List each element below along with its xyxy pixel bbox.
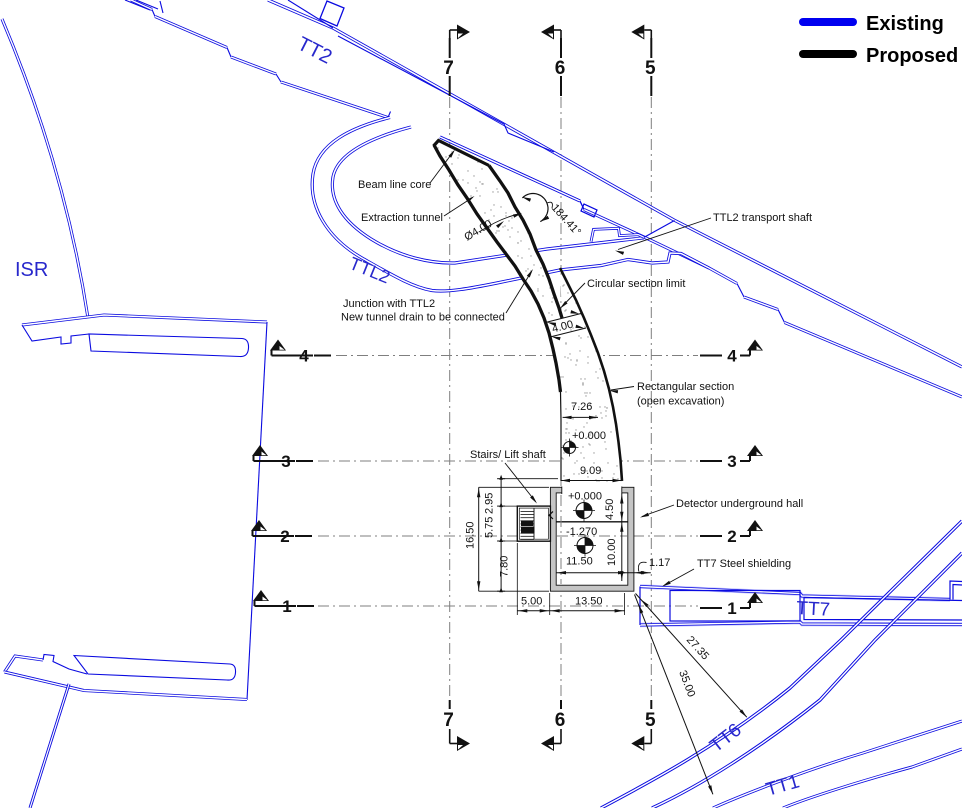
svg-text:+0.000: +0.000 (568, 491, 602, 503)
svg-text:10.00: 10.00 (606, 538, 618, 566)
svg-text:3: 3 (727, 452, 736, 471)
svg-text:2: 2 (727, 527, 736, 546)
svg-text:4: 4 (299, 347, 309, 366)
svg-text:4: 4 (727, 347, 737, 366)
svg-text:7: 7 (443, 58, 454, 79)
svg-text:4.50: 4.50 (604, 499, 616, 520)
svg-text:Detector underground hall: Detector underground hall (676, 498, 803, 510)
svg-text:Existing: Existing (866, 13, 944, 35)
svg-text:Stairs/ Lift shaft: Stairs/ Lift shaft (470, 449, 546, 461)
svg-text:5: 5 (645, 710, 656, 731)
svg-text:1: 1 (282, 597, 291, 616)
svg-text:5: 5 (645, 58, 656, 79)
svg-text:New tunnel drain to be connect: New tunnel drain to be connected (341, 312, 505, 324)
svg-text:16.50: 16.50 (465, 521, 477, 549)
svg-text:6: 6 (555, 710, 566, 731)
svg-text:2.95: 2.95 (484, 493, 496, 514)
svg-text:Extraction tunnel: Extraction tunnel (361, 212, 443, 224)
svg-text:13.50: 13.50 (575, 596, 603, 608)
svg-text:7.26: 7.26 (571, 401, 592, 413)
svg-text:(open excavation): (open excavation) (637, 396, 724, 408)
svg-text:11.50: 11.50 (566, 556, 593, 568)
svg-text:TTL2 transport shaft: TTL2 transport shaft (713, 212, 812, 224)
svg-text:5.00: 5.00 (521, 596, 542, 608)
svg-text:1: 1 (727, 599, 736, 618)
svg-text:Rectangular section: Rectangular section (637, 381, 734, 393)
svg-text:9.09: 9.09 (580, 465, 601, 477)
svg-text:5.75: 5.75 (484, 517, 496, 538)
svg-text:2: 2 (280, 527, 289, 546)
svg-text:Beam line core: Beam line core (358, 179, 431, 191)
svg-text:6: 6 (555, 58, 566, 79)
svg-text:+0.000: +0.000 (572, 430, 606, 442)
svg-text:Junction with TTL2: Junction with TTL2 (343, 298, 435, 310)
svg-text:-1.270: -1.270 (566, 526, 597, 538)
svg-text:Proposed: Proposed (866, 45, 958, 67)
svg-text:Circular section limit: Circular section limit (587, 278, 685, 290)
svg-text:ISR: ISR (15, 259, 48, 281)
svg-text:TT7: TT7 (796, 598, 831, 621)
svg-text:7.80: 7.80 (499, 556, 511, 577)
svg-text:7: 7 (443, 710, 454, 731)
svg-text:1.17: 1.17 (649, 557, 670, 569)
svg-text:3: 3 (281, 452, 290, 471)
svg-text:TT7 Steel shielding: TT7 Steel shielding (697, 558, 791, 570)
